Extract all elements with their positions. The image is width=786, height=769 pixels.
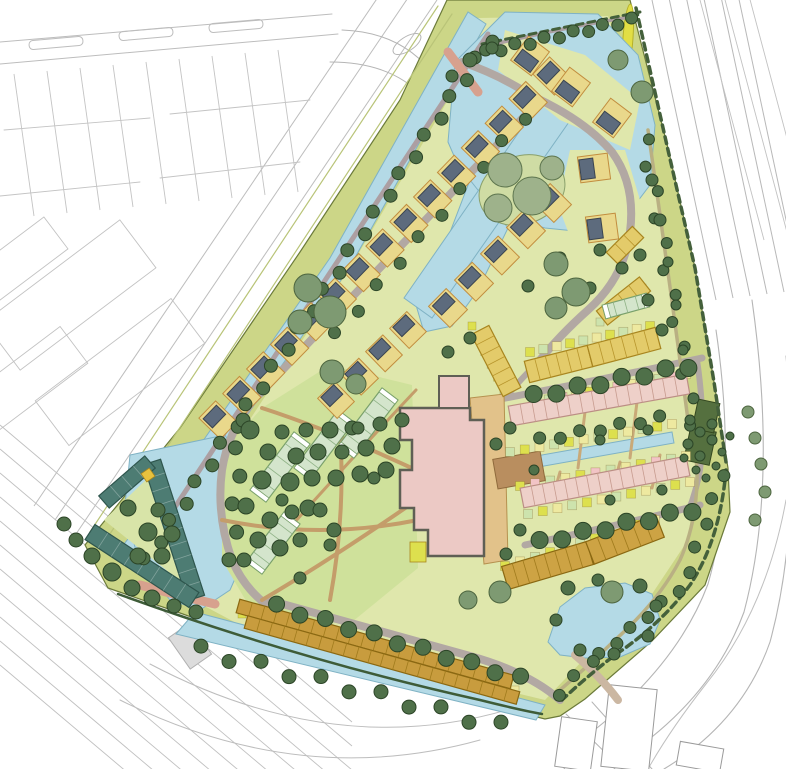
site-masterplan-drawing bbox=[0, 0, 786, 769]
house bbox=[585, 213, 618, 243]
masterplan-screenshot bbox=[0, 0, 786, 769]
house bbox=[577, 153, 610, 183]
